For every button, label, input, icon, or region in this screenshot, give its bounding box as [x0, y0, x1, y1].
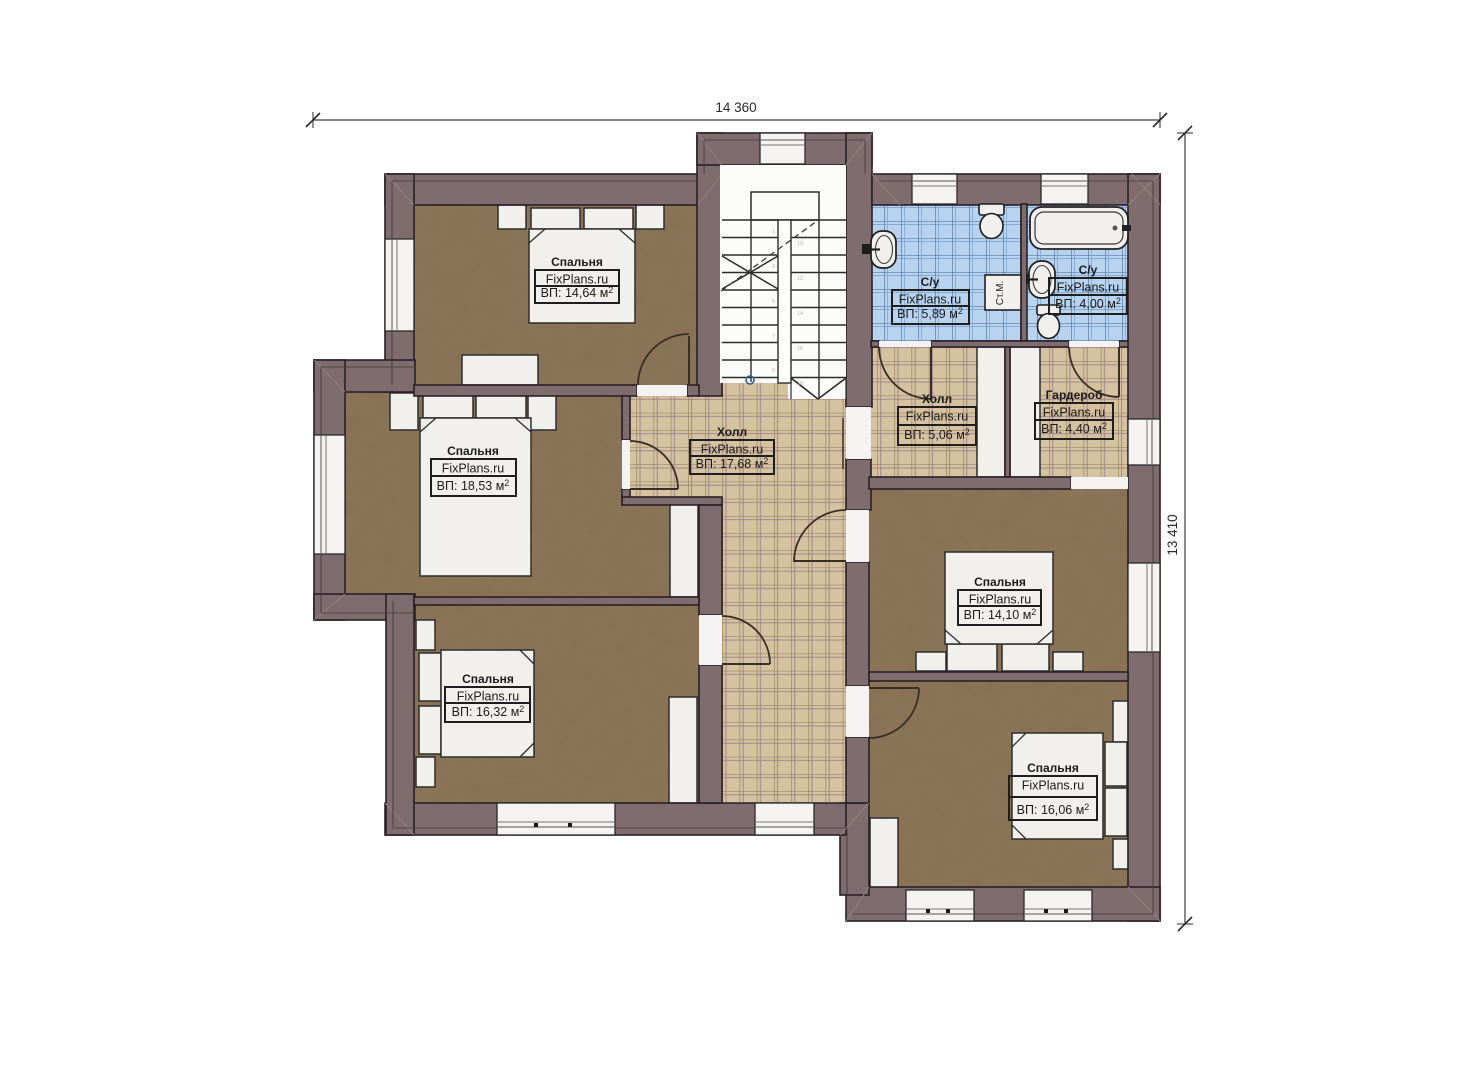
- svg-text:FixPlans.ru: FixPlans.ru: [701, 443, 764, 457]
- svg-text:Спальня: Спальня: [447, 444, 499, 458]
- svg-text:FixPlans.ru: FixPlans.ru: [1043, 406, 1106, 420]
- svg-text:12: 12: [797, 276, 803, 282]
- svg-text:ВП: 4,40 м2: ВП: 4,40 м2: [1041, 421, 1107, 436]
- svg-text:13 410: 13 410: [1165, 514, 1180, 555]
- svg-text:7: 7: [772, 334, 775, 340]
- svg-text:ВП: 4,00 м2: ВП: 4,00 м2: [1055, 296, 1121, 311]
- svg-text:ВП: 5,89 м2: ВП: 5,89 м2: [897, 306, 963, 321]
- svg-text:3: 3: [772, 264, 775, 270]
- svg-text:Ст.М.: Ст.М.: [995, 281, 1006, 306]
- svg-text:ВП: 14,10 м2: ВП: 14,10 м2: [964, 607, 1037, 622]
- svg-text:ВП: 5,06 м2: ВП: 5,06 м2: [904, 427, 970, 442]
- svg-text:9: 9: [772, 368, 775, 374]
- svg-text:ВП: 18,53 м2: ВП: 18,53 м2: [437, 478, 510, 493]
- svg-text:С/у: С/у: [1079, 263, 1098, 277]
- svg-text:FixPlans.ru: FixPlans.ru: [546, 273, 609, 287]
- svg-text:FixPlans.ru: FixPlans.ru: [1057, 281, 1120, 295]
- svg-text:FixPlans.ru: FixPlans.ru: [899, 293, 962, 307]
- svg-text:ВП: 16,32 м2: ВП: 16,32 м2: [452, 704, 525, 719]
- svg-text:FixPlans.ru: FixPlans.ru: [906, 410, 969, 424]
- svg-text:5: 5: [772, 299, 775, 305]
- svg-text:FixPlans.ru: FixPlans.ru: [969, 593, 1032, 607]
- svg-text:Спальня: Спальня: [551, 255, 603, 269]
- svg-text:С/у: С/у: [921, 275, 940, 289]
- svg-text:Спальня: Спальня: [462, 672, 514, 686]
- svg-text:FixPlans.ru: FixPlans.ru: [457, 690, 520, 704]
- svg-text:16: 16: [797, 346, 803, 352]
- svg-text:Холл: Холл: [717, 425, 747, 439]
- svg-text:FixPlans.ru: FixPlans.ru: [1022, 779, 1085, 793]
- svg-text:14: 14: [797, 311, 803, 317]
- svg-text:14 360: 14 360: [715, 100, 756, 115]
- svg-text:10: 10: [797, 241, 803, 247]
- svg-text:Холл: Холл: [922, 392, 952, 406]
- svg-text:FixPlans.ru: FixPlans.ru: [442, 462, 505, 476]
- svg-text:Гардероб: Гардероб: [1046, 388, 1103, 402]
- svg-text:1: 1: [772, 229, 775, 235]
- svg-text:Спальня: Спальня: [1027, 761, 1079, 775]
- svg-text:ВП: 17,68 м2: ВП: 17,68 м2: [696, 456, 769, 471]
- svg-text:ВП: 14,64 м2: ВП: 14,64 м2: [541, 285, 614, 300]
- svg-text:Спальня: Спальня: [974, 575, 1026, 589]
- svg-text:18: 18: [797, 381, 803, 387]
- svg-text:ВП: 16,06 м2: ВП: 16,06 м2: [1017, 802, 1090, 817]
